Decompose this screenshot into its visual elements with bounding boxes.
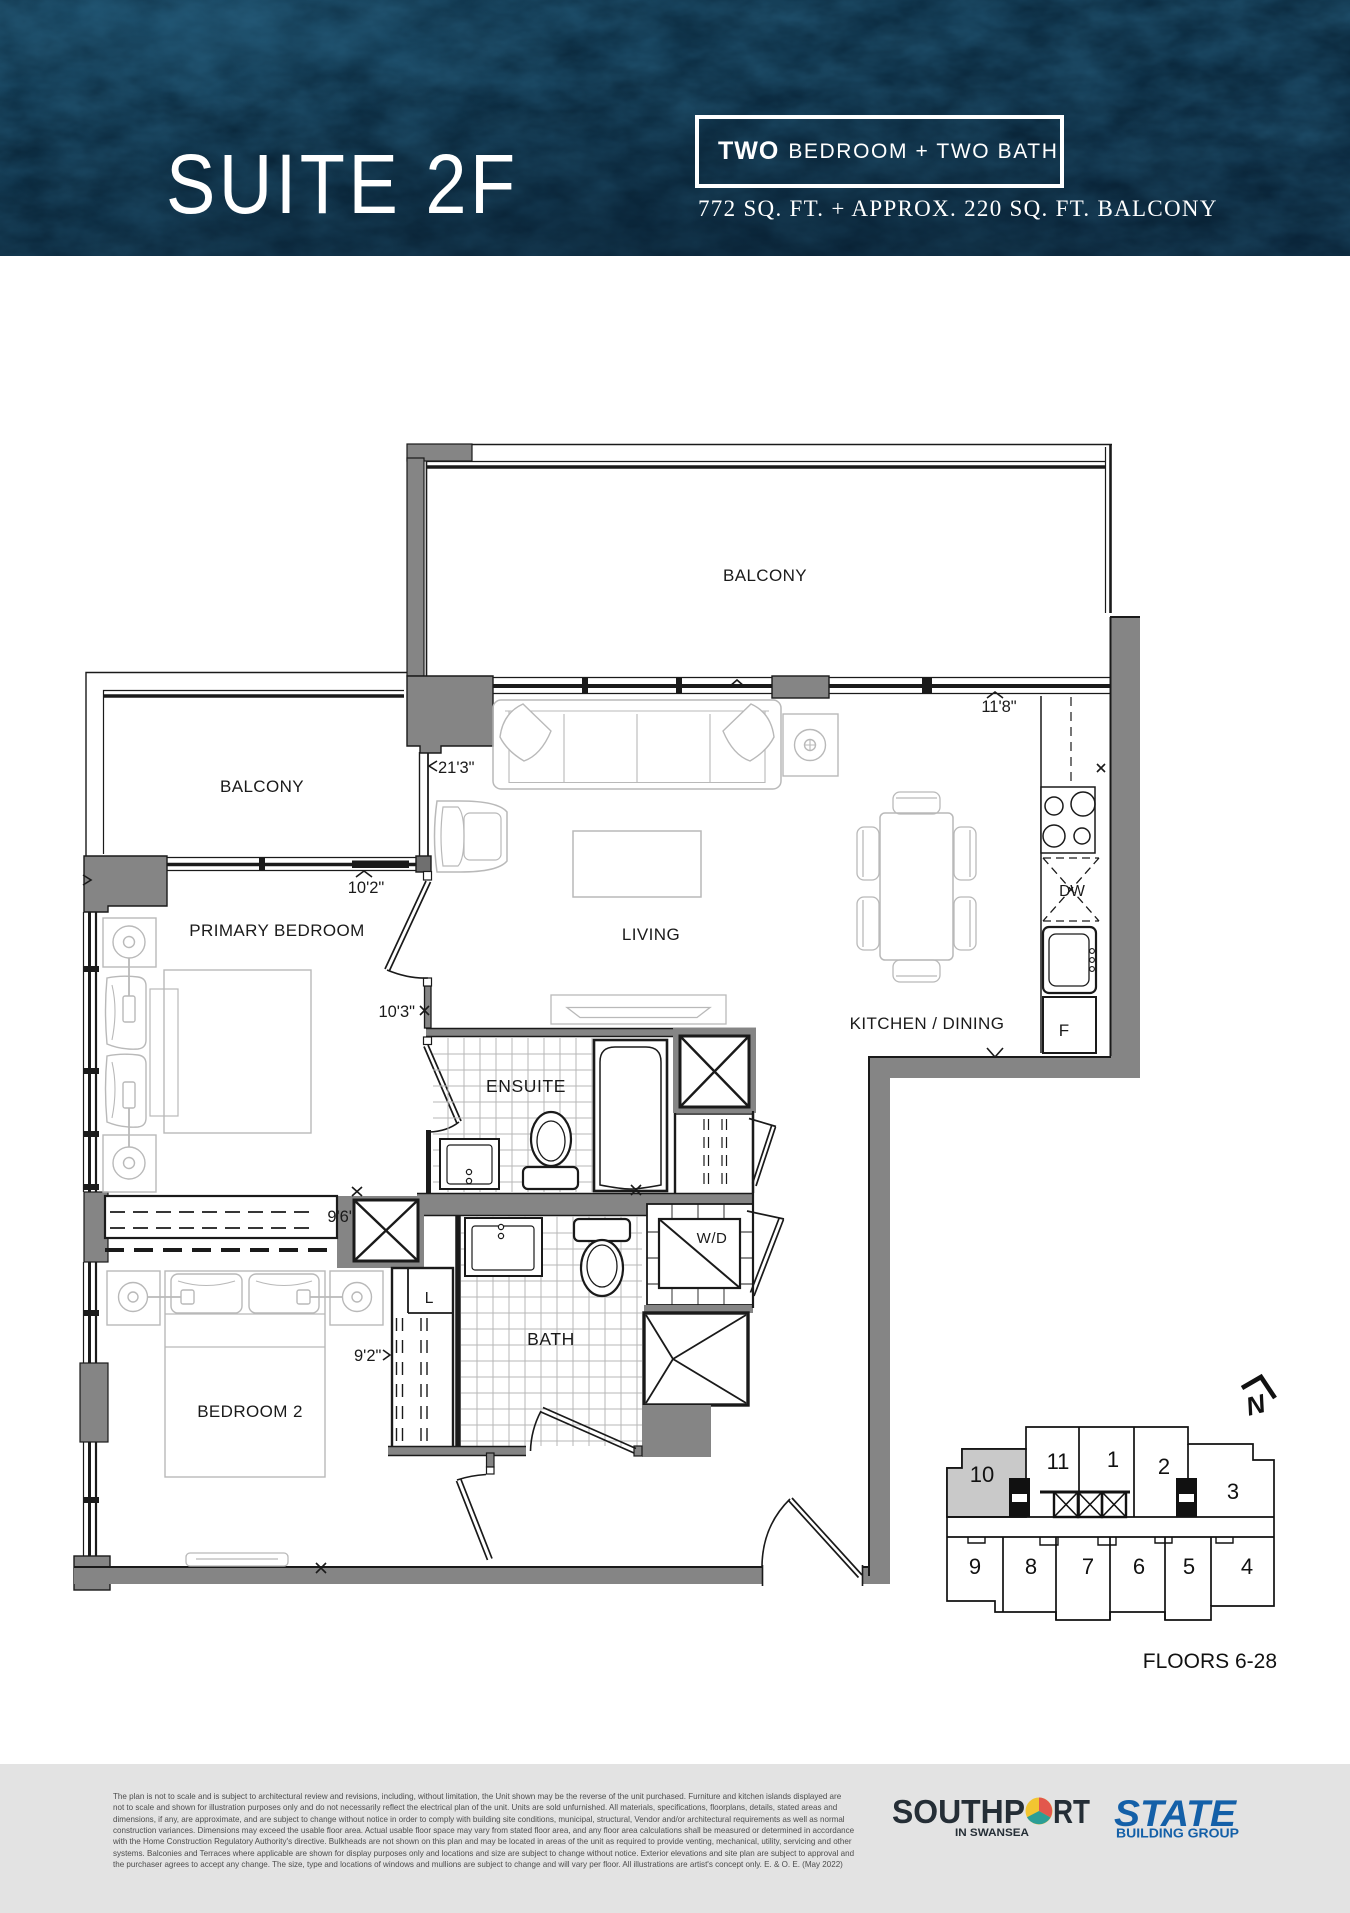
svg-text:F: F	[1059, 1021, 1069, 1040]
svg-text:FLOORS 6-28: FLOORS 6-28	[1143, 1650, 1277, 1673]
svg-text:LIVING: LIVING	[622, 925, 680, 944]
svg-text:ENSUITE: ENSUITE	[486, 1076, 566, 1096]
svg-text:PRIMARY BEDROOM: PRIMARY BEDROOM	[189, 921, 364, 940]
svg-text:21'3": 21'3"	[438, 759, 475, 777]
svg-text:10'2": 10'2"	[348, 879, 385, 897]
svg-text:10: 10	[970, 1462, 994, 1487]
svg-text:L: L	[425, 1290, 434, 1307]
svg-text:RT: RT	[1053, 1793, 1090, 1830]
svg-text:2: 2	[1158, 1454, 1170, 1479]
svg-text:3: 3	[1227, 1479, 1239, 1504]
svg-text:8: 8	[1025, 1554, 1037, 1579]
svg-text:9'6": 9'6"	[327, 1208, 355, 1226]
svg-text:10'3": 10'3"	[378, 1003, 415, 1021]
svg-text:KITCHEN / DINING: KITCHEN / DINING	[850, 1014, 1005, 1033]
svg-text:BALCONY: BALCONY	[723, 566, 807, 585]
svg-text:BALCONY: BALCONY	[220, 777, 304, 796]
svg-text:4: 4	[1241, 1554, 1253, 1579]
svg-text:W/D: W/D	[697, 1230, 728, 1247]
svg-text:BATH: BATH	[527, 1329, 575, 1349]
svg-text:5: 5	[1183, 1554, 1195, 1579]
svg-text:9'2": 9'2"	[354, 1347, 382, 1365]
svg-text:11: 11	[1047, 1449, 1070, 1474]
svg-text:DW: DW	[1059, 883, 1085, 900]
svg-text:BUILDING GROUP: BUILDING GROUP	[1116, 1827, 1239, 1841]
svg-text:N: N	[1243, 1388, 1270, 1422]
svg-text:IN SWANSEA: IN SWANSEA	[955, 1827, 1029, 1839]
svg-text:1: 1	[1107, 1447, 1119, 1472]
svg-text:7: 7	[1082, 1554, 1094, 1579]
svg-text:9: 9	[969, 1554, 981, 1579]
svg-text:BEDROOM 2: BEDROOM 2	[197, 1402, 303, 1421]
svg-text:11'8": 11'8"	[981, 698, 1016, 716]
svg-text:6: 6	[1133, 1554, 1145, 1579]
